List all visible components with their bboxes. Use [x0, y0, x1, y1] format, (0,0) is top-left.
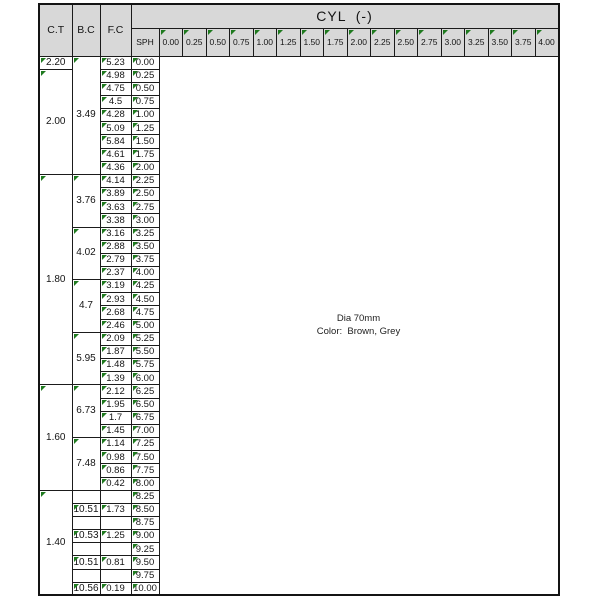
fc-value: 5.09: [106, 123, 125, 134]
fc-cell: 2.12: [100, 385, 131, 398]
col-header-bc: B.C: [72, 4, 100, 56]
sph-value: 3.75: [136, 254, 155, 265]
comment-marker-icon: [349, 30, 354, 35]
bc-value: 3.49: [76, 109, 95, 120]
fc-cell: 3.89: [100, 188, 131, 201]
sph-cell: 9.50: [131, 556, 159, 569]
bc-cell: 10.51: [72, 503, 100, 516]
fc-value: 3.19: [106, 280, 125, 291]
fc-cell: 4.28: [100, 109, 131, 122]
sph-value: 0.75: [136, 96, 155, 107]
sph-cell: 5.75: [131, 359, 159, 372]
sph-cell: 7.50: [131, 451, 159, 464]
comment-marker-icon: [41, 176, 46, 181]
sph-header-label: SPH: [136, 37, 153, 47]
cyl-col-header-label: 2.00: [350, 37, 367, 47]
sph-cell: 9.75: [131, 569, 159, 582]
comment-marker-icon: [74, 176, 79, 181]
dia-note: Dia 70mm: [337, 312, 380, 325]
sph-cell: 9.00: [131, 530, 159, 543]
fc-value: 0.81: [106, 557, 125, 568]
cyl-col-header-label: 3.75: [515, 37, 532, 47]
fc-cell: 2.37: [100, 267, 131, 280]
sph-cell: 8.00: [131, 477, 159, 490]
fc-value: 4.61: [106, 149, 125, 160]
fc-cell: 4.98: [100, 69, 131, 82]
cyl-col-header: 2.75: [418, 28, 442, 56]
sph-value: 9.00: [136, 530, 155, 541]
sph-value: 8.50: [136, 504, 155, 515]
bc-value: 3.76: [76, 195, 95, 206]
ct-cell: 2.20: [39, 56, 72, 69]
bc-cell: [72, 543, 100, 556]
sph-value: 9.25: [136, 544, 155, 555]
comment-marker-icon: [302, 30, 307, 35]
sph-value: 0.25: [136, 70, 155, 81]
sph-cell: 0.25: [131, 69, 159, 82]
ct-cell: 1.80: [39, 174, 72, 385]
sph-value: 7.25: [136, 438, 155, 449]
sph-cell: 1.25: [131, 122, 159, 135]
comment-marker-icon: [74, 386, 79, 391]
table-row: 2.203.495.230.00Dia 70mmColor: Brown, Gr…: [39, 56, 559, 69]
ct-value: 2.20: [46, 57, 65, 68]
comment-marker-icon: [74, 229, 79, 234]
fc-value: 1.25: [106, 530, 125, 541]
cyl-col-header-label: 1.25: [280, 37, 297, 47]
ct-value: 1.40: [46, 537, 65, 548]
cyl-col-header: 0.50: [206, 28, 230, 56]
sph-value: 8.75: [136, 517, 155, 528]
bc-value: 4.7: [79, 300, 93, 311]
color-note: Color: Brown, Grey: [317, 325, 400, 338]
fc-cell: 5.09: [100, 122, 131, 135]
fc-cell: 2.93: [100, 293, 131, 306]
col-header-ct: C.T: [39, 4, 72, 56]
sph-cell: 6.25: [131, 385, 159, 398]
bc-cell: 3.76: [72, 174, 100, 227]
sph-cell: 2.50: [131, 188, 159, 201]
fc-value: 4.98: [106, 70, 125, 81]
sph-cell: 7.25: [131, 438, 159, 451]
sph-value: 4.00: [136, 267, 155, 278]
fc-value: 2.68: [106, 307, 125, 318]
sph-cell: 6.00: [131, 372, 159, 385]
cyl-col-header: 0.75: [230, 28, 254, 56]
fc-cell: 4.75: [100, 82, 131, 95]
sph-cell: 5.00: [131, 319, 159, 332]
fc-cell: 1.39: [100, 372, 131, 385]
comment-marker-icon: [184, 30, 189, 35]
fc-cell: 2.09: [100, 332, 131, 345]
sph-cell: 8.25: [131, 490, 159, 503]
col-header-fc: F.C: [100, 4, 131, 56]
fc-value: 1.95: [106, 399, 125, 410]
cyl-col-header-label: 2.25: [374, 37, 391, 47]
fc-cell: [100, 543, 131, 556]
sph-cell: 3.25: [131, 227, 159, 240]
fc-value: 0.42: [106, 478, 125, 489]
cyl-col-header-label: 0.00: [162, 37, 179, 47]
fc-cell: 1.73: [100, 503, 131, 516]
sph-cell: 7.75: [131, 464, 159, 477]
cyl-col-header: 1.00: [253, 28, 277, 56]
sph-cell: 0.00: [131, 56, 159, 69]
col-header-fc-label: F.C: [108, 24, 124, 36]
cyl-col-header: 1.75: [324, 28, 348, 56]
fc-cell: 1.95: [100, 398, 131, 411]
sph-cell: 3.00: [131, 214, 159, 227]
sph-value: 7.00: [136, 425, 155, 436]
sph-cell: 5.50: [131, 345, 159, 358]
sph-value: 0.00: [136, 57, 155, 68]
fc-cell: 1.87: [100, 345, 131, 358]
fc-cell: 3.63: [100, 201, 131, 214]
fc-cell: 0.19: [100, 582, 131, 595]
sph-cell: 8.75: [131, 516, 159, 529]
fc-value: 1.87: [106, 346, 125, 357]
fc-value: 1.7: [109, 412, 122, 423]
sph-value: 2.00: [136, 162, 155, 173]
fc-value: 3.38: [106, 215, 125, 226]
fc-value: 4.75: [106, 83, 125, 94]
fc-value: 2.46: [106, 320, 125, 331]
ct-cell: 1.40: [39, 490, 72, 595]
fc-cell: 0.98: [100, 451, 131, 464]
sph-value: 5.50: [136, 346, 155, 357]
col-header-bc-label: B.C: [77, 24, 95, 36]
sph-value: 6.50: [136, 399, 155, 410]
fc-value: 3.89: [106, 188, 125, 199]
fc-cell: [100, 516, 131, 529]
fc-value: 1.73: [106, 504, 125, 515]
cyl-col-header-label: 0.75: [233, 37, 250, 47]
fc-cell: 2.46: [100, 319, 131, 332]
cyl-col-header: 0.00: [159, 28, 183, 56]
fc-value: 2.37: [106, 267, 125, 278]
fc-value: 4.36: [106, 162, 125, 173]
sph-value: 6.75: [136, 412, 155, 423]
cyl-col-header: 0.25: [183, 28, 207, 56]
fc-cell: [100, 490, 131, 503]
sph-value: 2.25: [136, 175, 155, 186]
sph-cell: 7.00: [131, 424, 159, 437]
sph-cell: 2.00: [131, 161, 159, 174]
sph-value: 1.50: [136, 136, 155, 147]
cyl-col-header: 3.25: [465, 28, 489, 56]
sph-value: 2.50: [136, 188, 155, 199]
sph-cell: 9.25: [131, 543, 159, 556]
sph-header: SPH: [131, 28, 159, 56]
sph-value: 9.75: [136, 570, 155, 581]
bc-cell: 6.73: [72, 385, 100, 438]
sph-cell: 2.75: [131, 201, 159, 214]
cyl-col-header: 4.00: [535, 28, 559, 56]
comment-marker-icon: [396, 30, 401, 35]
sph-cell: 1.50: [131, 135, 159, 148]
bc-cell: 10.51: [72, 556, 100, 569]
cyl-col-header: 1.25: [277, 28, 301, 56]
ct-value: 1.80: [46, 274, 65, 285]
bc-cell: 7.48: [72, 438, 100, 491]
bc-cell: [72, 490, 100, 503]
sph-value: 1.25: [136, 123, 155, 134]
cyl-title-label: CYL (-): [316, 8, 372, 24]
comment-marker-icon: [443, 30, 448, 35]
cyl-col-header: 3.75: [512, 28, 536, 56]
cyl-col-header-label: 1.00: [256, 37, 273, 47]
fc-cell: 4.61: [100, 148, 131, 161]
cyl-col-header: 3.00: [441, 28, 465, 56]
fc-cell: 2.88: [100, 240, 131, 253]
fc-cell: 3.19: [100, 280, 131, 293]
fc-cell: 2.79: [100, 253, 131, 266]
comment-marker-icon: [537, 30, 542, 35]
sph-value: 8.25: [136, 491, 155, 502]
ct-value: 2.00: [46, 116, 65, 127]
comment-marker-icon: [102, 97, 107, 102]
comment-marker-icon: [278, 30, 283, 35]
fc-cell: 4.5: [100, 95, 131, 108]
comment-marker-icon: [513, 30, 518, 35]
fc-cell: 1.14: [100, 438, 131, 451]
bc-value: 7.48: [76, 458, 95, 469]
bc-cell: 4.7: [72, 280, 100, 333]
fc-cell: 5.23: [100, 56, 131, 69]
sph-value: 5.75: [136, 359, 155, 370]
sph-value: 6.25: [136, 386, 155, 397]
comment-marker-icon: [231, 30, 236, 35]
fc-value: 5.23: [106, 57, 125, 68]
sph-value: 5.25: [136, 333, 155, 344]
lens-spec-sheet: C.T B.C F.C CYL (-) SPH 0.000.250.500.75…: [0, 0, 600, 600]
fc-cell: 3.38: [100, 214, 131, 227]
fc-value: 2.12: [106, 386, 125, 397]
fc-cell: 0.42: [100, 477, 131, 490]
fc-cell: 3.16: [100, 227, 131, 240]
cyl-col-header-label: 3.25: [468, 37, 485, 47]
sph-value: 7.50: [136, 452, 155, 463]
sph-value: 7.75: [136, 465, 155, 476]
cyl-col-header: 2.25: [371, 28, 395, 56]
bc-value: 10.51: [73, 557, 98, 568]
ct-cell: 2.00: [39, 69, 72, 174]
bc-value: 10.53: [73, 530, 98, 541]
cyl-col-header: 2.00: [347, 28, 371, 56]
cyl-title-header: CYL (-): [131, 4, 559, 28]
comment-marker-icon: [372, 30, 377, 35]
fc-cell: 4.36: [100, 161, 131, 174]
sph-cell: 4.00: [131, 267, 159, 280]
fc-value: 2.09: [106, 333, 125, 344]
fc-value: 2.88: [106, 241, 125, 252]
fc-value: 1.39: [106, 373, 125, 384]
cyl-col-header-label: 1.50: [303, 37, 320, 47]
comment-marker-icon: [490, 30, 495, 35]
fc-value: 3.63: [106, 202, 125, 213]
fc-cell: 0.86: [100, 464, 131, 477]
bc-cell: [72, 516, 100, 529]
sph-value: 3.25: [136, 228, 155, 239]
fc-value: 2.79: [106, 254, 125, 265]
sph-value: 6.00: [136, 373, 155, 384]
sph-value: 8.00: [136, 478, 155, 489]
sph-value: 4.75: [136, 307, 155, 318]
comment-marker-icon: [102, 413, 107, 418]
cyl-col-header-label: 2.75: [421, 37, 438, 47]
fc-cell: 2.68: [100, 306, 131, 319]
table-body: 2.203.495.230.00Dia 70mmColor: Brown, Gr…: [39, 56, 559, 595]
bc-value: 6.73: [76, 405, 95, 416]
comment-marker-icon: [255, 30, 260, 35]
comment-marker-icon: [41, 386, 46, 391]
fc-value: 0.86: [106, 465, 125, 476]
fc-cell: 1.7: [100, 411, 131, 424]
bc-cell: 5.95: [72, 332, 100, 385]
comment-marker-icon: [41, 492, 46, 497]
fc-cell: 4.14: [100, 174, 131, 187]
fc-value: 1.48: [106, 359, 125, 370]
sph-value: 4.50: [136, 294, 155, 305]
fc-value: 1.45: [106, 425, 125, 436]
fc-cell: 1.25: [100, 530, 131, 543]
sph-value: 9.50: [136, 557, 155, 568]
sph-cell: 2.25: [131, 174, 159, 187]
fc-cell: 5.84: [100, 135, 131, 148]
sph-cell: 4.25: [131, 280, 159, 293]
fc-cell: 1.45: [100, 424, 131, 437]
spec-table: C.T B.C F.C CYL (-) SPH 0.000.250.500.75…: [38, 3, 560, 596]
comment-marker-icon: [208, 30, 213, 35]
fc-value: 4.28: [106, 109, 125, 120]
fc-value: 4.14: [106, 175, 125, 186]
fc-cell: 1.48: [100, 359, 131, 372]
comment-marker-icon: [419, 30, 424, 35]
bc-cell: 4.02: [72, 227, 100, 280]
comment-marker-icon: [161, 30, 166, 35]
comment-marker-icon: [74, 281, 79, 286]
fc-value: 1.14: [106, 438, 125, 449]
sph-value: 0.50: [136, 83, 155, 94]
sph-cell: 1.75: [131, 148, 159, 161]
fc-value: 2.93: [106, 294, 125, 305]
ct-cell: 1.60: [39, 385, 72, 490]
bc-value: 10.56: [73, 583, 98, 594]
comment-marker-icon: [41, 71, 46, 76]
sph-cell: 0.50: [131, 82, 159, 95]
sph-value: 5.00: [136, 320, 155, 331]
fc-cell: [100, 569, 131, 582]
fc-value: 3.16: [106, 228, 125, 239]
sph-cell: 5.25: [131, 332, 159, 345]
cyl-col-header: 2.50: [394, 28, 418, 56]
sph-cell: 4.50: [131, 293, 159, 306]
cyl-col-header: 1.50: [300, 28, 324, 56]
cyl-col-header-label: 3.50: [491, 37, 508, 47]
bc-cell: 10.53: [72, 530, 100, 543]
cyl-col-header-label: 1.75: [327, 37, 344, 47]
sph-value: 2.75: [136, 202, 155, 213]
bc-cell: 3.49: [72, 56, 100, 174]
comment-marker-icon: [325, 30, 330, 35]
sph-value: 4.25: [136, 280, 155, 291]
fc-cell: 0.81: [100, 556, 131, 569]
bc-value: 5.95: [76, 353, 95, 364]
sph-value: 10.00: [133, 583, 157, 594]
cyl-col-header: 3.50: [488, 28, 512, 56]
sph-cell: 3.75: [131, 253, 159, 266]
col-header-ct-label: C.T: [47, 24, 64, 36]
sph-value: 1.75: [136, 149, 155, 160]
cyl-col-header-label: 3.00: [444, 37, 461, 47]
bc-cell: [72, 569, 100, 582]
fc-value: 4.5: [109, 96, 122, 107]
sph-value: 1.00: [136, 109, 155, 120]
cyl-col-header-label: 2.50: [397, 37, 414, 47]
bc-value: 10.51: [73, 504, 98, 515]
comment-marker-icon: [74, 334, 79, 339]
fc-value: 5.84: [106, 136, 125, 147]
sph-cell: 3.50: [131, 240, 159, 253]
sph-cell: 8.50: [131, 503, 159, 516]
sph-cell: 4.75: [131, 306, 159, 319]
sph-cell: 1.00: [131, 109, 159, 122]
product-notes: Dia 70mmColor: Brown, Grey: [160, 312, 558, 338]
sph-cell: 10.00: [131, 582, 159, 595]
notes-cell: Dia 70mmColor: Brown, Grey: [159, 56, 559, 595]
table-header: C.T B.C F.C CYL (-) SPH 0.000.250.500.75…: [39, 4, 559, 56]
comment-marker-icon: [466, 30, 471, 35]
sph-cell: 6.75: [131, 411, 159, 424]
cyl-col-header-label: 0.25: [186, 37, 203, 47]
comment-marker-icon: [74, 58, 79, 63]
ct-value: 1.60: [46, 432, 65, 443]
cyl-col-header-label: 4.00: [538, 37, 555, 47]
bc-cell: 10.56: [72, 582, 100, 595]
bc-value: 4.02: [76, 247, 95, 258]
sph-value: 3.50: [136, 241, 155, 252]
comment-marker-icon: [74, 439, 79, 444]
fc-value: 0.98: [106, 452, 125, 463]
cyl-col-header-label: 0.50: [209, 37, 226, 47]
sph-value: 3.00: [136, 215, 155, 226]
fc-value: 0.19: [106, 583, 125, 594]
sph-cell: 0.75: [131, 95, 159, 108]
sph-cell: 6.50: [131, 398, 159, 411]
